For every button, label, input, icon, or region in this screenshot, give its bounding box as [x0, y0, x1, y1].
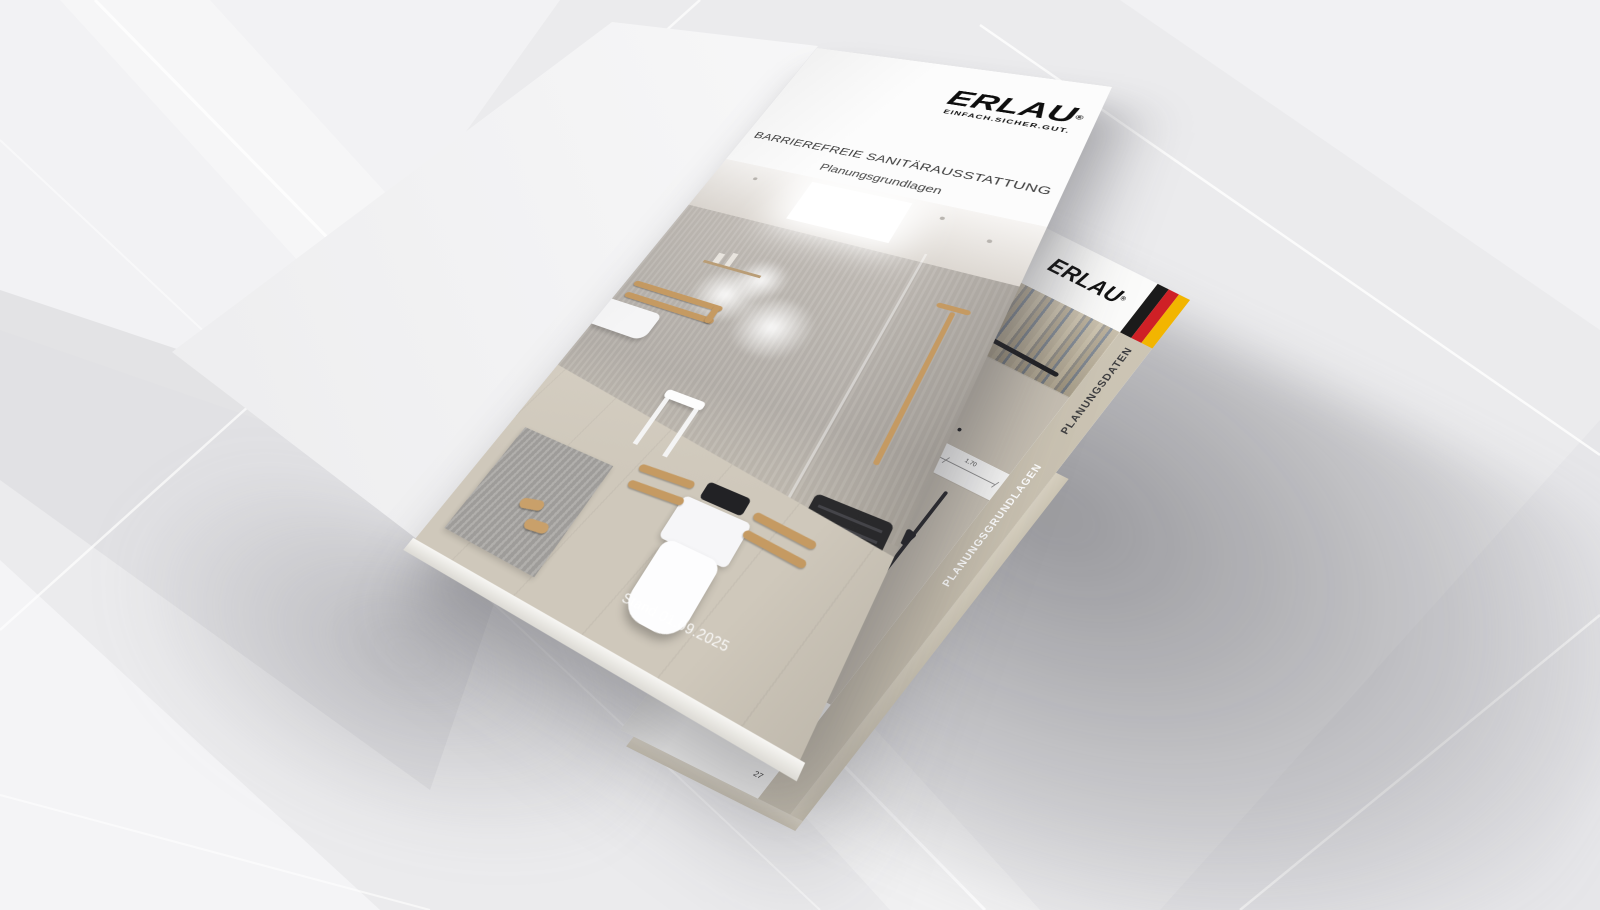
- erlau-logo: ERLAU® EINFACH.SICHER.GUT.: [939, 87, 1086, 135]
- mockup-scene: ERLAU® PLANUNGSDATEN PLANUNGSGRUNDLAGEN: [0, 0, 1600, 910]
- erlau-registered-mark: ®: [1074, 114, 1085, 122]
- dim-label: 1,70: [963, 458, 978, 469]
